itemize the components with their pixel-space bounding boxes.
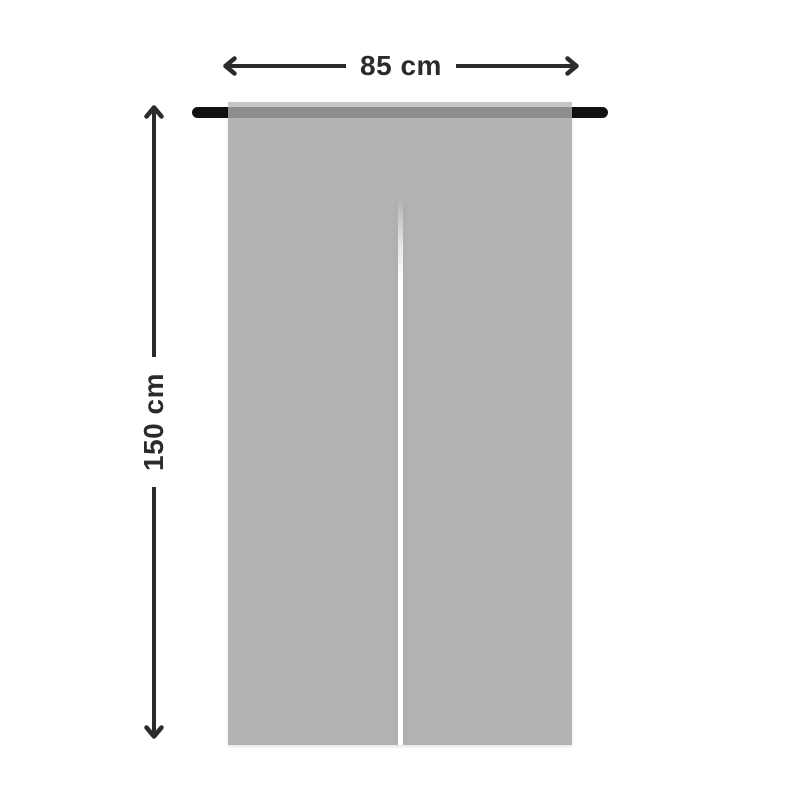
curtain-center-split — [398, 200, 403, 745]
rod-through-fabric-band — [228, 107, 572, 118]
width-dimension: 85 cm — [222, 48, 580, 84]
noren-curtain — [228, 102, 572, 745]
product-dimension-diagram: 85 cm 150 cm — [0, 0, 800, 800]
height-dimension: 150 cm — [136, 104, 172, 740]
height-label: 150 cm — [136, 357, 172, 487]
arrow-left-icon — [220, 55, 242, 77]
arrow-right-icon — [560, 55, 582, 77]
arrow-down-icon — [143, 720, 165, 742]
arrow-up-icon — [143, 102, 165, 124]
width-label: 85 cm — [346, 48, 456, 84]
